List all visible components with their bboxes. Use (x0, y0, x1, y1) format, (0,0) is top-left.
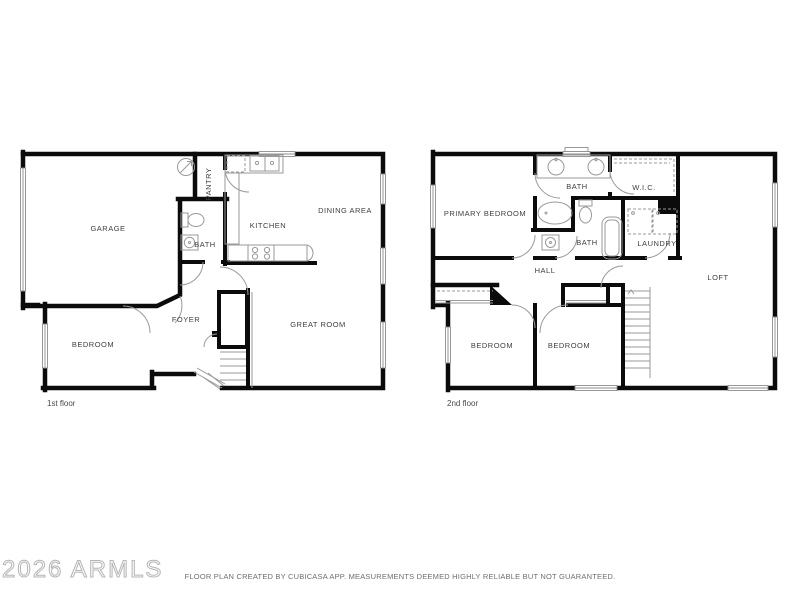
closet-sliding-door (566, 301, 606, 304)
stair-treads (625, 287, 650, 378)
floor1-walls (23, 152, 383, 390)
water-heater-icon (178, 159, 195, 176)
garage-door-opening (21, 168, 26, 291)
stair-treads (203, 292, 252, 389)
room-label-pantry: PANTRY (204, 168, 213, 201)
room-label-wic: W.I.C. (632, 183, 655, 192)
stove-icon (248, 245, 274, 261)
floor1-fixtures (178, 155, 314, 389)
entry-door (194, 368, 225, 388)
window (575, 386, 617, 391)
window (728, 386, 768, 391)
window (381, 248, 386, 284)
room-label-bedroom-right: BEDROOM (548, 341, 590, 350)
window (431, 185, 436, 228)
room-label-primary-bedroom: PRIMARY BEDROOM (444, 209, 526, 218)
kitchen-sink-icon (250, 156, 279, 171)
room-label-loft: LOFT (707, 273, 728, 282)
bath-upper-door-arc (535, 173, 560, 198)
sink-icon (542, 235, 559, 250)
bath-door-arc (180, 262, 203, 285)
understair-closet (219, 292, 247, 347)
room-label-bath-upper: BATH (566, 182, 587, 191)
room-label-great-room: GREAT ROOM (290, 320, 346, 329)
window (773, 317, 778, 357)
wic-door-arc (610, 170, 634, 194)
floor2-plan: PRIMARY BEDROOM BATH W.I.C. BATH LAUNDRY… (425, 146, 785, 396)
floor-plan-page: GARAGE PANTRY KITCHEN DINING AREA BATH F… (0, 0, 800, 600)
floor2-caption: 2nd floor (447, 399, 478, 408)
room-label-bath: BATH (194, 240, 215, 249)
room-label-bedroom: BEDROOM (72, 340, 114, 349)
bedroom-left-door-arc (512, 305, 535, 328)
closet-shelf (435, 291, 493, 303)
bath-lower-door-arc (555, 236, 577, 258)
floor2-windows (431, 148, 778, 391)
angled-wall (490, 285, 512, 305)
floor1-windows (21, 152, 386, 369)
room-label-kitchen: KITCHEN (250, 221, 286, 230)
bedroom-door-arc (123, 306, 150, 333)
washer-icon (628, 209, 652, 234)
bathtub-icon (602, 217, 622, 259)
window (381, 322, 386, 368)
refrigerator-icon (227, 156, 245, 172)
room-label-foyer: FOYER (172, 315, 200, 324)
chase-block (658, 196, 678, 214)
room-label-bath-lower: BATH (576, 238, 597, 247)
window (446, 327, 451, 363)
window (773, 183, 778, 227)
floor2-walls (433, 152, 775, 390)
floor1-room-labels: GARAGE PANTRY KITCHEN DINING AREA BATH F… (72, 168, 372, 349)
bathtub-icon (538, 202, 572, 224)
room-label-laundry: LAUNDRY (637, 239, 676, 248)
sink-icon (548, 158, 564, 175)
room-label-bedroom-left: BEDROOM (471, 341, 513, 350)
window (43, 324, 48, 368)
toilet-icon (579, 200, 592, 223)
room-label-hall: HALL (535, 266, 556, 275)
window (381, 174, 386, 204)
floor1-plan: GARAGE PANTRY KITCHEN DINING AREA BATH F… (15, 146, 390, 396)
primary-bedroom-door-arc (512, 235, 535, 258)
floor1-caption: 1st floor (47, 399, 75, 408)
sink-icon (588, 158, 604, 175)
bedroom-right-door-arc (540, 305, 568, 333)
toilet-icon (181, 213, 204, 227)
room-label-garage: GARAGE (90, 224, 125, 233)
room-label-dining-area: DINING AREA (318, 206, 372, 215)
disclaimer-text: FLOOR PLAN CREATED BY CUBICASA APP. MEAS… (0, 572, 800, 581)
